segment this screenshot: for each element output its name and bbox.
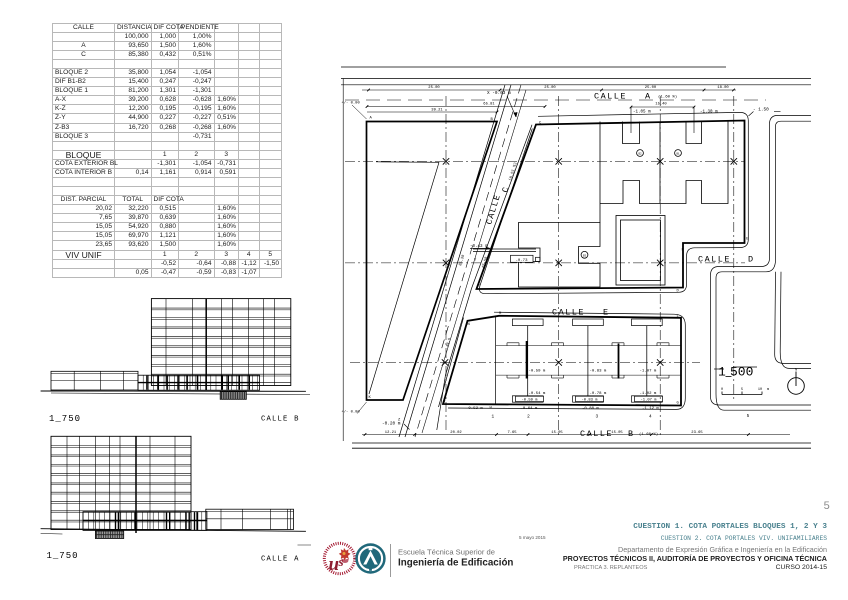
svg-text:15.05: 15.05 <box>611 431 623 435</box>
svg-text:CALLE: CALLE <box>594 92 627 102</box>
svg-text:7.65: 7.65 <box>507 431 517 435</box>
svg-text:D: D <box>748 255 753 265</box>
svg-text:2: 2 <box>527 415 530 420</box>
svg-text:-0.73: -0.73 <box>515 259 528 263</box>
svg-text:1_750: 1_750 <box>47 551 79 561</box>
svg-text:5: 5 <box>747 414 750 419</box>
svg-text:C: C <box>500 186 511 194</box>
svg-text:+/- 0.00: +/- 0.00 <box>342 410 361 415</box>
svg-text:A: A <box>370 117 373 121</box>
svg-text:4: 4 <box>649 415 652 420</box>
svg-text:Escuela Técnica Superior de: Escuela Técnica Superior de <box>398 548 495 557</box>
svg-text:E: E <box>746 238 749 242</box>
svg-text:20.02: 20.02 <box>450 431 462 435</box>
svg-text:A: A <box>645 92 651 102</box>
svg-text:18.00: 18.00 <box>717 86 729 90</box>
svg-text:-0.59 m: -0.59 m <box>522 399 539 403</box>
svg-text:CALLE B: CALLE B <box>261 416 300 424</box>
svg-text:-0.64 m: -0.64 m <box>521 407 538 411</box>
svg-text:-0.54 m: -0.54 m <box>529 392 546 396</box>
svg-text:N: N <box>795 369 797 373</box>
svg-text:H: H <box>490 407 492 411</box>
svg-text:10: 10 <box>758 388 762 392</box>
svg-text:-1.02 m: -1.02 m <box>640 392 657 396</box>
svg-text:(1.60 %): (1.60 %) <box>639 432 658 437</box>
svg-text:(1.60 %): (1.60 %) <box>658 95 677 100</box>
svg-text:Z: Z <box>398 419 401 423</box>
svg-text:85.38: 85.38 <box>459 254 466 267</box>
svg-text:1: 1 <box>491 415 494 420</box>
svg-text:-0.83 m: -0.83 m <box>590 369 607 373</box>
svg-text:Ingeniería de Edificación: Ingeniería de Edificación <box>398 558 513 569</box>
svg-text:B2: B2 <box>638 153 642 156</box>
svg-text:5: 5 <box>741 388 743 392</box>
svg-text:0: 0 <box>721 388 723 392</box>
svg-text:39.21: 39.21 <box>431 109 443 113</box>
svg-text:23.65: 23.65 <box>691 431 703 435</box>
svg-text:m: m <box>767 388 769 392</box>
svg-text:1_750: 1_750 <box>49 414 81 424</box>
svg-text:-1.12 m: -1.12 m <box>642 407 659 411</box>
svg-text:X -0.63 m: X -0.63 m <box>487 91 511 96</box>
svg-text:E: E <box>603 308 608 318</box>
svg-text:-1.07 m: -1.07 m <box>641 399 658 403</box>
svg-text:-1.30 m: -1.30 m <box>700 111 718 115</box>
svg-text:-0.83 m: -0.83 m <box>582 399 599 403</box>
svg-text:N: N <box>468 323 470 327</box>
svg-text:44.9: 44.9 <box>446 337 453 348</box>
svg-text:- 1.50: - 1.50 <box>753 108 769 113</box>
svg-text:12.21: 12.21 <box>385 431 397 435</box>
svg-text:-0.88 m: -0.88 m <box>582 407 599 411</box>
svg-text:D: D <box>677 290 680 294</box>
svg-text:65.81: 65.81 <box>483 103 495 107</box>
svg-text:-1.07 m: -1.07 m <box>640 369 657 373</box>
svg-text:F: F <box>682 249 685 253</box>
svg-text:B1: B1 <box>676 153 680 156</box>
svg-text:B: B <box>628 429 633 439</box>
svg-text:B3: B3 <box>583 254 587 257</box>
svg-text:3: 3 <box>595 415 598 420</box>
svg-text:-0.52 m: -0.52 m <box>466 407 483 411</box>
svg-text:25.00: 25.00 <box>645 86 657 90</box>
svg-text:-0.78 m: -0.78 m <box>590 392 607 396</box>
svg-text:25.00: 25.00 <box>544 86 556 90</box>
svg-text:1: 1 <box>718 365 726 380</box>
svg-text:15.40: 15.40 <box>655 103 667 107</box>
svg-text:u: u <box>329 554 340 575</box>
svg-text:Y: Y <box>474 259 477 263</box>
svg-text:-0.59 m: -0.59 m <box>529 369 546 373</box>
svg-text:CALLE A: CALLE A <box>261 556 300 564</box>
svg-text:25.00: 25.00 <box>428 86 440 90</box>
svg-text:+/- 0.00: +/- 0.00 <box>342 101 361 106</box>
svg-text:15.05: 15.05 <box>551 431 563 435</box>
svg-text:CALLE: CALLE <box>580 429 613 439</box>
